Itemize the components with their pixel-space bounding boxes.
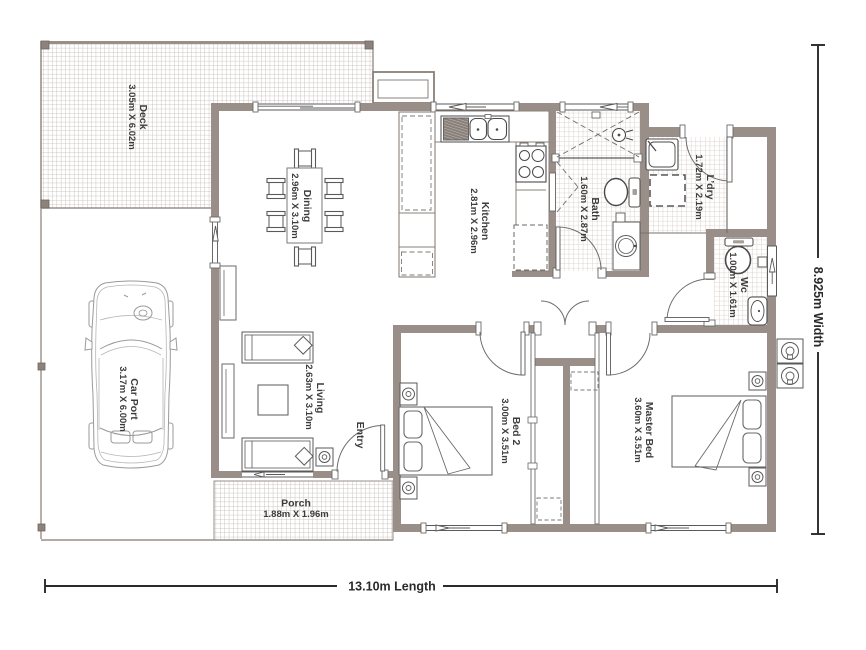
svg-text:1.00m X 1.61m: 1.00m X 1.61m <box>727 252 738 318</box>
svg-text:Entry: Entry <box>354 422 366 449</box>
svg-text:3.60m X 3.51m: 3.60m X 3.51m <box>632 397 643 463</box>
svg-text:Dining: Dining <box>301 190 313 223</box>
svg-text:Deck: Deck <box>137 104 149 129</box>
svg-text:Bath: Bath <box>589 197 601 220</box>
svg-text:Bed 2: Bed 2 <box>510 417 522 446</box>
svg-text:3.00m X 3.51m: 3.00m X 3.51m <box>499 398 510 464</box>
svg-text:8.925m Width: 8.925m Width <box>811 267 825 347</box>
svg-text:2.81m X 2.96m: 2.81m X 2.96m <box>468 188 479 254</box>
svg-text:1.60m X 2.87m: 1.60m X 2.87m <box>578 176 589 242</box>
svg-text:1.72m X 2.19m: 1.72m X 2.19m <box>693 154 704 220</box>
svg-text:2.63m X 3.10m: 2.63m X 3.10m <box>303 364 314 430</box>
svg-text:Wc: Wc <box>738 277 750 293</box>
svg-text:1.88m X 1.96m: 1.88m X 1.96m <box>263 509 329 520</box>
svg-text:13.10m Length: 13.10m Length <box>348 580 436 594</box>
svg-text:Car Port: Car Port <box>128 378 140 420</box>
svg-text:Master Bed: Master Bed <box>643 402 655 459</box>
svg-text:L’dry: L’dry <box>704 174 716 199</box>
svg-text:2.96m X 3.10m: 2.96m X 3.10m <box>289 173 300 239</box>
svg-text:Living: Living <box>314 383 326 414</box>
svg-text:Kitchen: Kitchen <box>479 202 491 241</box>
svg-text:3.17m X 6.00m: 3.17m X 6.00m <box>117 366 128 432</box>
svg-text:Porch: Porch <box>281 498 311 510</box>
svg-text:3.05m X 6.02m: 3.05m X 6.02m <box>126 84 137 150</box>
